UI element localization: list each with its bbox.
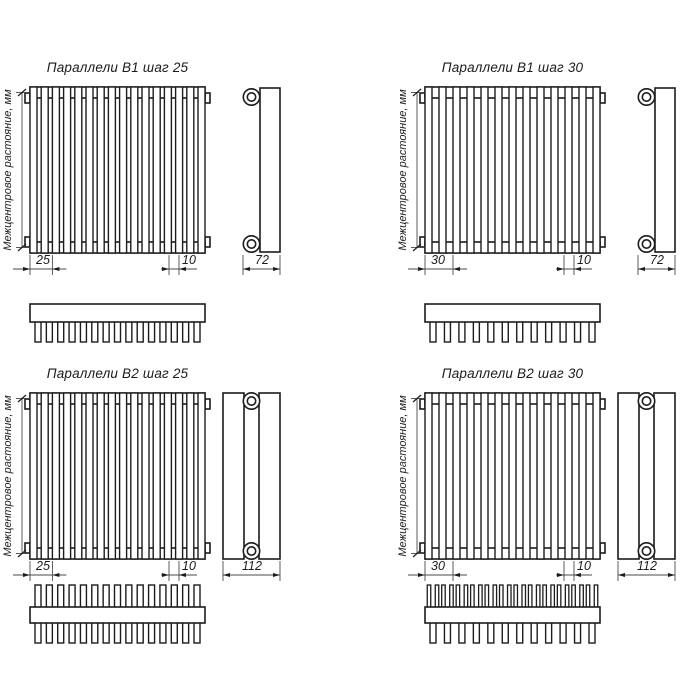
depth-dimension-label: 112 [617,559,677,573]
quadrant-b1-step-30: Параллели В1 шаг 30 Межцентровое растоян… [397,57,700,349]
axis-label: Межцентровое растояние, мм [2,391,16,561]
quadrant-b2-step-25: Параллели В2 шаг 25 Межцентровое растоян… [2,363,352,655]
radiator-line-art [2,57,352,349]
step-dimension-label: 30 [415,253,461,267]
step-dimension-label: 25 [20,253,66,267]
depth-dimension-label: 72 [627,253,687,267]
tube-dimension-label: 10 [182,559,208,573]
axis-label: Межцентровое растояние, мм [397,85,411,255]
step-dimension-label: 30 [415,559,461,573]
tube-dimension-label: 10 [577,559,603,573]
view-title: Параллели В2 шаг 30 [415,366,610,381]
view-title: Параллели В1 шаг 30 [415,60,610,75]
radiator-line-art [397,363,700,655]
view-title: Параллели В1 шаг 25 [20,60,215,75]
tube-dimension-label: 10 [577,253,603,267]
axis-label: Межцентровое растояние, мм [2,85,16,255]
radiator-line-art [2,363,352,655]
depth-dimension-label: 112 [222,559,282,573]
drawing-sheet: Параллели В1 шаг 25 Межцентровое растоян… [0,0,700,700]
quadrant-b2-step-30: Параллели В2 шаг 30 Межцентровое растоян… [397,363,700,655]
radiator-line-art [397,57,700,349]
step-dimension-label: 25 [20,559,66,573]
axis-label: Межцентровое растояние, мм [397,391,411,561]
tube-dimension-label: 10 [182,253,208,267]
quadrant-b1-step-25: Параллели В1 шаг 25 Межцентровое растоян… [2,57,352,349]
view-title: Параллели В2 шаг 25 [20,366,215,381]
depth-dimension-label: 72 [232,253,292,267]
